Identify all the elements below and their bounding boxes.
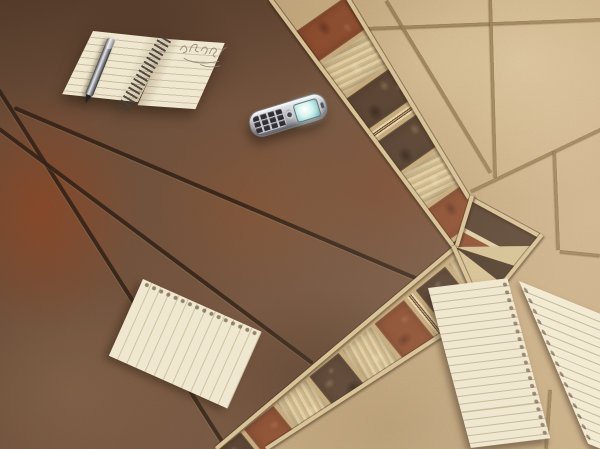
- phone-screen: [292, 98, 321, 123]
- floor-scene: [0, 0, 600, 449]
- phone-keypad: [252, 108, 287, 134]
- phone-earpiece: [319, 102, 324, 109]
- phone-nav-button: [284, 109, 294, 122]
- grout-line-brown: [13, 106, 418, 281]
- grout-line-brown: [0, 88, 229, 449]
